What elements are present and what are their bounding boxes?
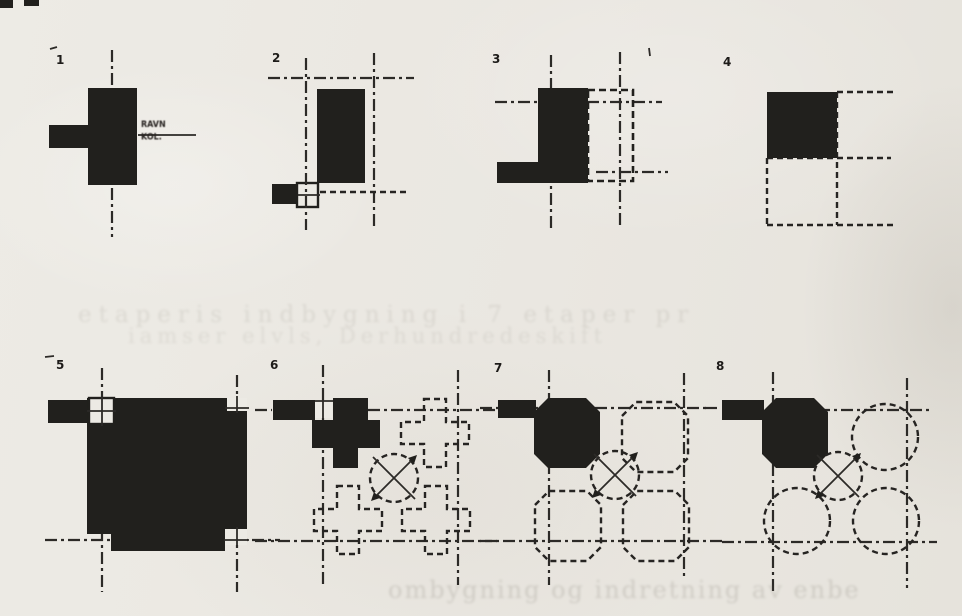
figure-8-number: 8 [716,359,724,373]
figure-4: 4 [723,55,894,225]
figure-7: 7 [480,361,724,585]
dashed-pier-outline [314,486,382,554]
pier-arm [498,400,536,418]
figure-1-number: 1 [56,53,64,67]
figure-4-number: 4 [723,55,731,69]
figure-2-number: 2 [272,51,280,65]
figure-6-number: 6 [270,358,278,372]
pier-l-shape [497,88,588,183]
pier-arm [48,400,89,423]
figure-7-number: 7 [494,361,502,375]
dashed-pier-outline [588,90,633,181]
figure-5-number: 5 [56,358,64,372]
stray-mark [45,356,54,357]
figure-3-number: 3 [492,52,500,66]
stray-mark [50,47,57,49]
pier-core [767,92,837,158]
stray-mark [649,48,650,56]
dashed-pier-outline [623,491,689,561]
dashed-pier-outline [535,491,601,561]
pier-octagon [534,398,600,468]
scanned-book-page: 1 2 3 [0,0,962,616]
pier-core [317,89,365,183]
dashed-pier-outline [622,402,688,472]
pier-arm [49,125,88,148]
figure-6: 6 [255,358,497,588]
pier-octagon [762,398,828,468]
corner-notch [225,529,247,545]
pier-cross-bottom [333,448,358,468]
figure-5: 5 [45,356,280,592]
scan-artifact [0,0,39,8]
pier-cross-top [333,398,368,420]
figure-2: 2 [268,51,414,230]
figure-1-annotation: RAVN KOL. [141,118,187,143]
annotation-line: RAVN [141,118,187,131]
pier-core [88,88,137,185]
dashed-pier-outline [852,404,918,470]
pier-arm [272,184,298,204]
dashed-pier-outline [853,488,919,554]
pier-arm [722,400,764,420]
annotation-line: KOL. [141,131,187,144]
pier-arm [273,400,315,420]
figure-8: 8 [705,359,937,592]
figure-3: 3 [492,48,668,228]
pier-base [111,534,225,551]
pier-plan-diagrams: 1 2 3 [0,0,962,616]
pier-cross-band [312,420,380,448]
